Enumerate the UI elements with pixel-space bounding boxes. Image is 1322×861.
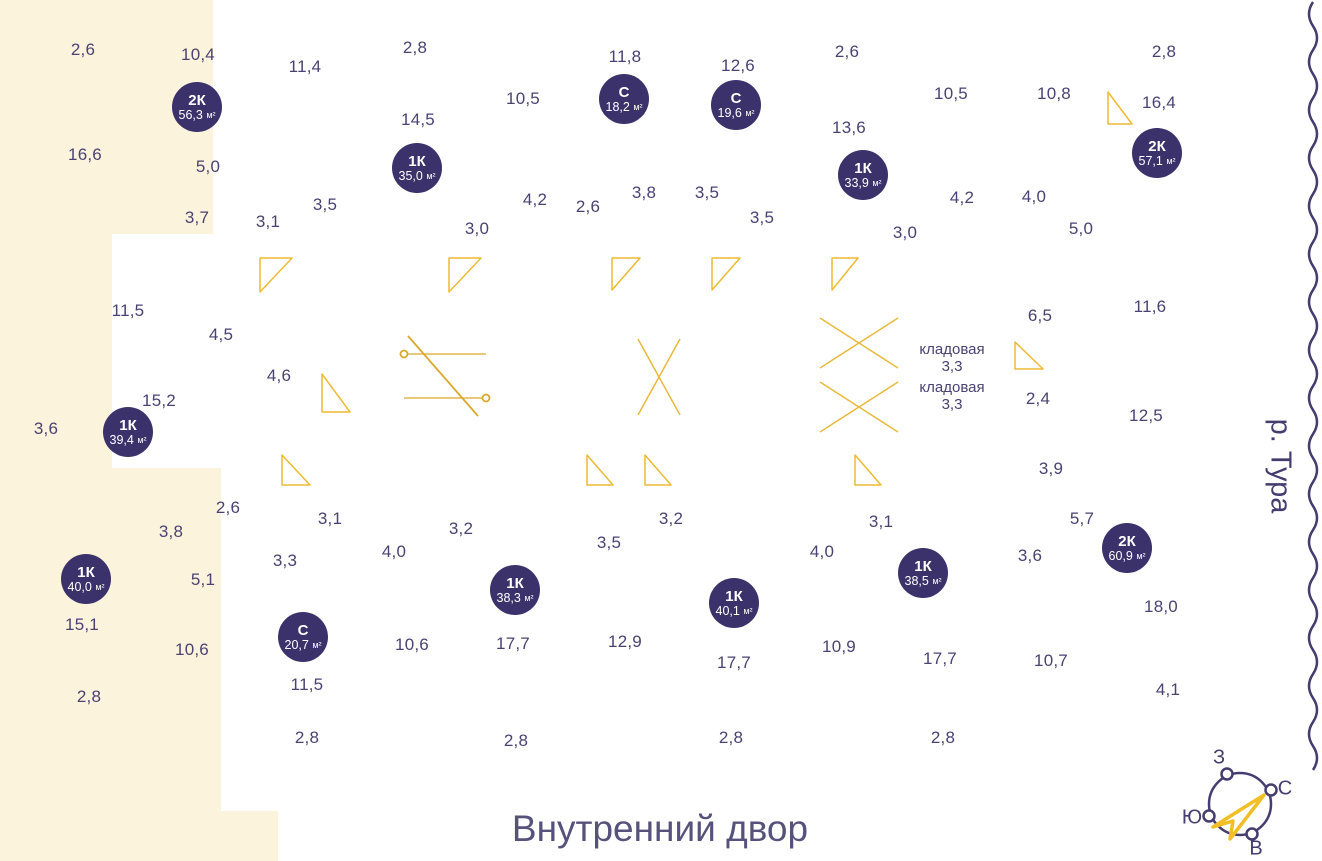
apartment-type-label: 2К: [1118, 534, 1136, 549]
room-area-label: 11,5: [291, 675, 324, 695]
room-area-label: 11,4: [289, 57, 322, 77]
apartment-type-label: 1К: [77, 565, 95, 580]
apartment-type-label: 1К: [408, 154, 426, 169]
room-area-label: 16,4: [1142, 93, 1176, 113]
room-area-label: 4,0: [1022, 187, 1046, 207]
apartment-badge[interactable]: С20,7 м²: [278, 612, 328, 662]
room-area-label: 12,6: [721, 56, 755, 76]
river-boundary-line: [1309, 2, 1317, 770]
room-area-label: 10,5: [506, 89, 540, 109]
room-area-label: 3,8: [159, 522, 183, 542]
apartment-area-label: 56,3 м²: [179, 108, 216, 122]
room-area-label: 18,0: [1144, 597, 1178, 617]
apartment-area-label: 38,5 м²: [905, 574, 942, 588]
room-area-label: 2,8: [77, 687, 101, 707]
room-area-label: 10,9: [822, 637, 856, 657]
room-area-label: 4,0: [810, 542, 834, 562]
room-area-label: 3,2: [449, 519, 473, 539]
apartment-type-label: 2К: [1148, 139, 1166, 154]
room-area-label: 3,7: [185, 208, 209, 228]
room-area-label: 2,6: [216, 498, 240, 518]
apartment-badge[interactable]: 1К35,0 м²: [392, 143, 442, 193]
apartment-area-label: 35,0 м²: [399, 169, 436, 183]
apartment-badge[interactable]: 1К40,1 м²: [709, 578, 759, 628]
room-area-label: 2,8: [719, 728, 743, 748]
room-area-label: 11,8: [609, 47, 642, 67]
apartment-area-label: 57,1 м²: [1139, 154, 1176, 168]
room-area-label: 3,1: [256, 212, 280, 232]
apartment-type-label: 1К: [914, 559, 932, 574]
floor-plan: 2,610,411,42,816,614,55,03,53,73,110,511…: [0, 0, 1322, 861]
room-area-label: 12,5: [1129, 406, 1163, 426]
apartment-area-label: 18,2 м²: [606, 100, 643, 114]
room-area-label: 10,4: [181, 45, 215, 65]
apartment-type-label: 1К: [119, 418, 137, 433]
room-area-label: 3,1: [318, 509, 342, 529]
room-area-label: 3,9: [1039, 459, 1063, 479]
room-area-label: 10,6: [395, 635, 429, 655]
room-area-label: 3,8: [632, 183, 656, 203]
room-area-label: 3,6: [34, 419, 58, 439]
apartment-area-label: 40,1 м²: [716, 604, 753, 618]
apartment-type-label: 1К: [506, 576, 524, 591]
room-area-label: 12,9: [608, 632, 642, 652]
room-area-label: 4,2: [950, 188, 974, 208]
apartment-badge[interactable]: С18,2 м²: [599, 74, 649, 124]
room-area-label: 2,8: [504, 731, 528, 751]
room-area-label: 2,8: [403, 38, 427, 58]
apartment-badge[interactable]: 1К38,3 м²: [490, 565, 540, 615]
apartment-badge[interactable]: 2К57,1 м²: [1132, 128, 1182, 178]
apartment-type-label: 1К: [854, 161, 872, 176]
room-area-label: 3,0: [465, 219, 489, 239]
room-area-label: 10,6: [175, 640, 209, 660]
room-area-label: 14,5: [401, 110, 435, 130]
storage-room-label: кладовая3,3: [919, 341, 984, 375]
compass-rose: [1204, 769, 1277, 840]
room-area-label: 10,7: [1034, 651, 1068, 671]
room-area-label: 2,4: [1026, 389, 1050, 409]
room-area-label: 2,8: [931, 728, 955, 748]
room-area-label: 15,1: [65, 615, 99, 635]
room-area-label: 3,5: [313, 195, 337, 215]
room-area-label: 16,6: [68, 145, 102, 165]
room-area-label: 4,1: [1156, 680, 1180, 700]
room-area-label: 3,0: [893, 223, 917, 243]
room-area-label: 2,6: [835, 42, 859, 62]
storage-room-label: кладовая3,3: [919, 379, 984, 413]
apartment-badge[interactable]: 1К39,4 м²: [103, 407, 153, 457]
room-area-label: 17,7: [923, 649, 957, 669]
room-area-label: 11,6: [1134, 297, 1167, 317]
room-area-label: 5,1: [191, 570, 215, 590]
room-area-label: 6,5: [1028, 306, 1052, 326]
door-swing-icon: [260, 92, 1132, 485]
room-area-label: 5,0: [196, 157, 220, 177]
apartment-area-label: 19,6 м²: [718, 106, 755, 120]
room-area-label: 5,0: [1069, 219, 1093, 239]
room-area-label: 3,5: [695, 183, 719, 203]
room-area-label: 2,6: [71, 40, 95, 60]
apartment-badge[interactable]: 2К60,9 м²: [1102, 523, 1152, 573]
room-area-label: 5,7: [1070, 509, 1094, 529]
room-area-label: 3,3: [273, 551, 297, 571]
apartment-badge[interactable]: С19,6 м²: [711, 80, 761, 130]
apartment-type-label: 1К: [725, 589, 743, 604]
room-area-label: 3,5: [750, 208, 774, 228]
apartment-area-label: 40,0 м²: [68, 580, 105, 594]
apartment-type-label: С: [298, 623, 309, 638]
stair-run-icon: [401, 336, 490, 416]
room-area-label: 3,2: [659, 509, 683, 529]
apartment-area-label: 33,9 м²: [845, 176, 882, 190]
apartment-area-label: 39,4 м²: [110, 433, 147, 447]
apartment-badge[interactable]: 1К33,9 м²: [838, 150, 888, 200]
room-area-label: 10,8: [1037, 84, 1071, 104]
apartment-area-label: 38,3 м²: [497, 591, 534, 605]
room-area-label: 4,6: [267, 366, 291, 386]
apartment-badge[interactable]: 2К56,3 м²: [172, 82, 222, 132]
room-area-label: 17,7: [717, 653, 751, 673]
elevator-x-icon: [638, 318, 898, 432]
room-area-label: 4,5: [209, 325, 233, 345]
room-area-label: 10,5: [934, 84, 968, 104]
room-area-label: 2,6: [576, 197, 600, 217]
room-area-label: 17,7: [496, 634, 530, 654]
room-area-label: 2,8: [295, 728, 319, 748]
room-area-label: 4,2: [523, 190, 547, 210]
apartment-badge[interactable]: 1К38,5 м²: [898, 548, 948, 598]
room-area-label: 3,5: [597, 533, 621, 553]
room-area-label: 11,5: [112, 301, 145, 321]
room-area-label: 2,8: [1152, 42, 1176, 62]
apartment-area-label: 20,7 м²: [285, 638, 322, 652]
room-area-label: 3,1: [869, 512, 893, 532]
room-area-label: 15,2: [142, 391, 176, 411]
room-area-label: 13,6: [832, 118, 866, 138]
apartment-type-label: С: [731, 91, 742, 106]
apartment-area-label: 60,9 м²: [1109, 549, 1146, 563]
room-area-label: 3,6: [1018, 546, 1042, 566]
room-area-label: 4,0: [382, 542, 406, 562]
apartment-type-label: 2К: [188, 93, 206, 108]
apartment-badge[interactable]: 1К40,0 м²: [61, 554, 111, 604]
apartment-type-label: С: [619, 85, 630, 100]
